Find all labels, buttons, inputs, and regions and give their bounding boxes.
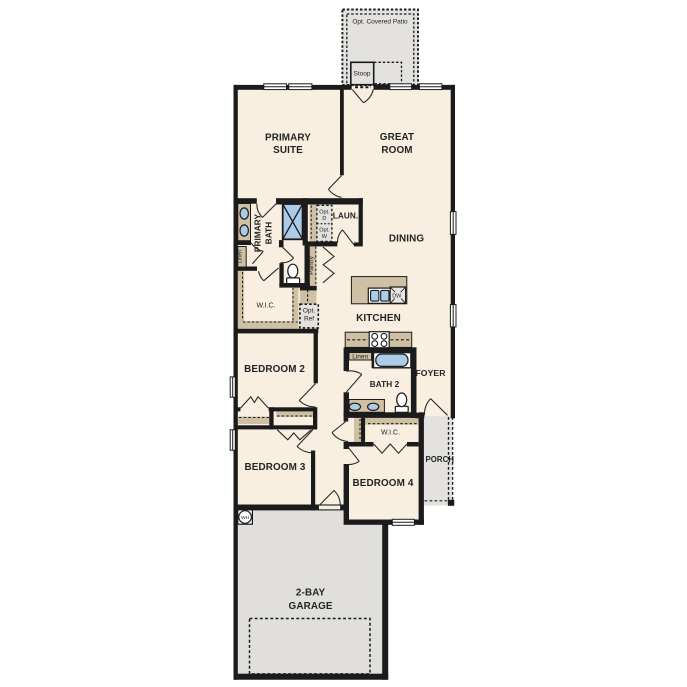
svg-text:BEDROOM 4: BEDROOM 4 [353, 478, 414, 489]
svg-text:W.I.C.: W.I.C. [381, 429, 400, 436]
svg-text:DINING: DINING [389, 234, 424, 245]
svg-text:GREAT: GREAT [380, 132, 414, 143]
svg-text:Opt. Covered Patio: Opt. Covered Patio [352, 19, 408, 26]
svg-text:DW: DW [392, 293, 402, 299]
svg-text:PRIMARY: PRIMARY [265, 133, 311, 144]
svg-text:Ref: Ref [304, 316, 314, 323]
svg-text:Stoop: Stoop [354, 71, 371, 78]
svg-text:Linen: Linen [238, 250, 244, 263]
svg-text:2-BAY: 2-BAY [296, 588, 326, 599]
svg-text:GARAGE: GARAGE [289, 601, 333, 612]
svg-text:SUITE: SUITE [273, 145, 303, 156]
svg-text:BATH 2: BATH 2 [370, 380, 400, 389]
svg-text:BEDROOM 3: BEDROOM 3 [245, 462, 306, 473]
svg-text:ROOM: ROOM [381, 145, 412, 156]
svg-text:Linen: Linen [352, 353, 368, 360]
svg-text:LAUN.: LAUN. [333, 212, 359, 221]
svg-text:Opt.: Opt. [319, 228, 330, 234]
svg-text:PORCH: PORCH [425, 455, 454, 464]
svg-text:Opt.: Opt. [303, 308, 315, 315]
svg-text:W: W [322, 234, 328, 240]
svg-text:BEDROOM 2: BEDROOM 2 [244, 364, 305, 375]
svg-text:W.I.C.: W.I.C. [256, 303, 275, 310]
svg-text:BATH: BATH [265, 222, 274, 245]
svg-text:WH: WH [241, 515, 250, 521]
svg-text:FOYER: FOYER [415, 368, 446, 378]
svg-text:Pantry: Pantry [308, 255, 315, 275]
svg-text:Opt.: Opt. [319, 210, 330, 216]
svg-text:D: D [322, 216, 326, 222]
svg-text:KITCHEN: KITCHEN [356, 313, 401, 324]
svg-text:PRIMARY: PRIMARY [254, 213, 263, 252]
